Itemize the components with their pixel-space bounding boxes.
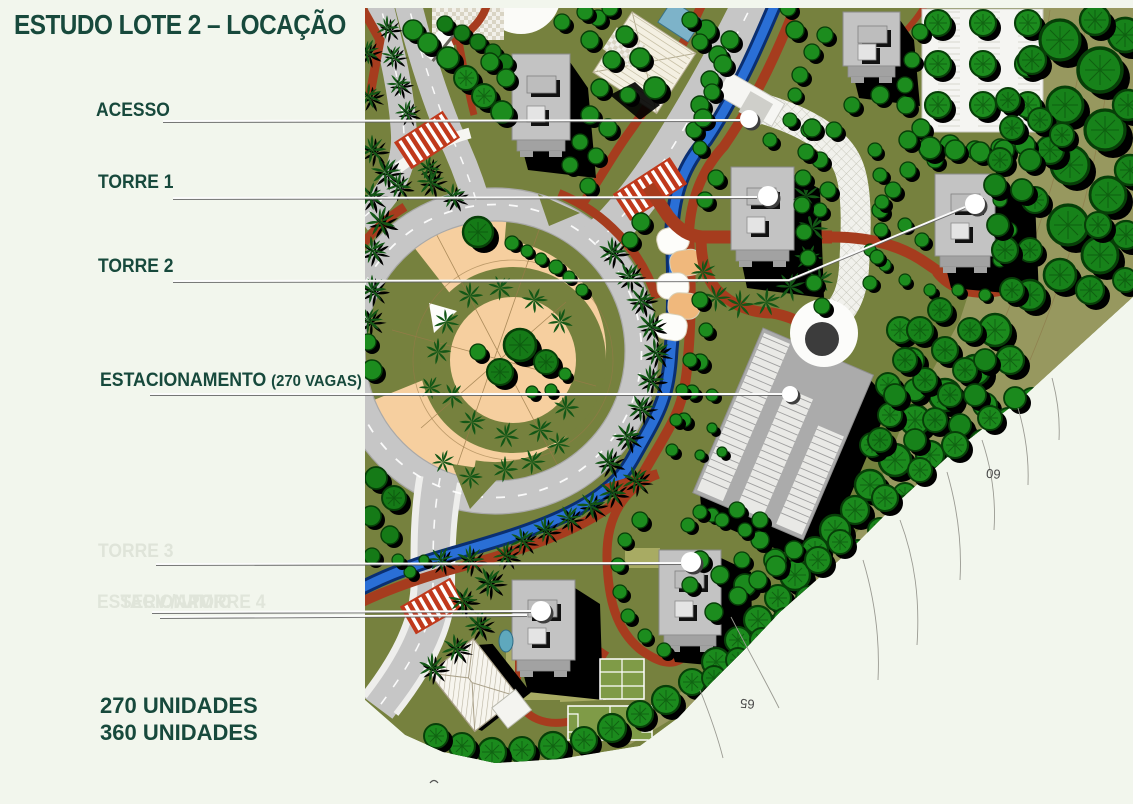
svg-text:65: 65	[740, 696, 756, 712]
svg-text:60: 60	[986, 466, 1002, 482]
